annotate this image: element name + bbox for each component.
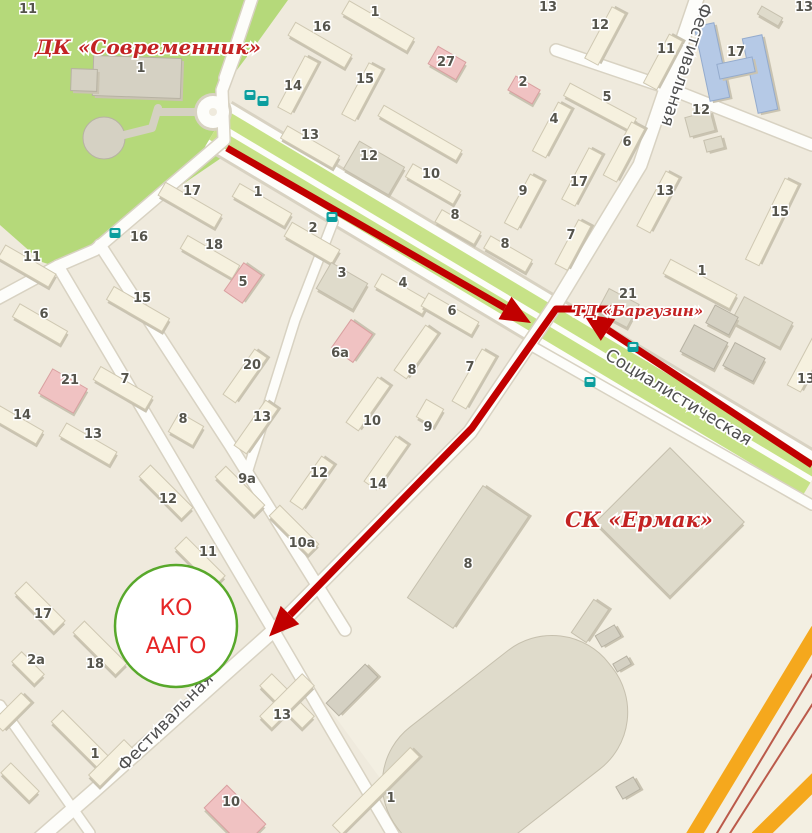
building-number: 18	[205, 238, 223, 253]
building-number: 12	[591, 18, 609, 33]
building-number: 21	[619, 287, 637, 302]
building-number: 11	[19, 2, 37, 17]
building-number: 8	[450, 208, 459, 223]
building	[71, 69, 98, 92]
building-number: 6a	[331, 346, 349, 361]
building-number: 5	[602, 90, 611, 105]
building-number: 17	[727, 45, 745, 60]
building-number: 7	[566, 228, 575, 243]
building-number: 12	[310, 466, 328, 481]
building-number: 11	[23, 250, 41, 265]
building-number: 8	[500, 237, 509, 252]
street-loop-island	[209, 108, 217, 116]
building-number: 2a	[27, 653, 45, 668]
building-number: 15	[771, 205, 789, 220]
building-number: 8	[463, 557, 472, 572]
building-number: 4	[549, 112, 558, 127]
building-number: 20	[243, 358, 261, 373]
building-number: 15	[133, 291, 151, 306]
building-number: 12	[692, 103, 710, 118]
building-number: 10	[222, 795, 240, 810]
building-number: 13	[539, 0, 557, 15]
building-number: 13	[273, 708, 291, 723]
bus-stop-icon-window	[630, 344, 637, 347]
building-number: 5	[238, 275, 247, 290]
map-image: 1111711313116141527213121049882121117561…	[0, 0, 812, 833]
bus-stop-icon-window	[587, 379, 594, 382]
bus-stop-icon-window	[112, 230, 119, 233]
building-number: 10	[363, 414, 381, 429]
building-number: 17	[34, 607, 52, 622]
building-number: 11	[657, 42, 675, 57]
building-number: 6	[622, 135, 631, 150]
building-number: 18	[86, 657, 104, 672]
building-number: 1	[136, 61, 145, 76]
building-number: 2	[518, 75, 527, 90]
bus-stop-icon-window	[329, 214, 336, 217]
building-number: 2	[308, 221, 317, 236]
building-number: 1	[386, 791, 395, 806]
building-number: 13	[795, 0, 812, 15]
building-number: 12	[159, 492, 177, 507]
building-number: 8	[407, 363, 416, 378]
building-number: 9	[518, 184, 527, 199]
ko-aago-marker-text: КО	[160, 596, 193, 621]
building-number: 12	[360, 149, 378, 164]
building-number: 9	[423, 420, 432, 435]
map-canvas[interactable]: 1111711313116141527213121049882121117561…	[0, 0, 812, 833]
building-number: 13	[797, 372, 812, 387]
building-number: 14	[284, 79, 302, 94]
td-barguzin-label: ТД «Баргузин»	[573, 302, 703, 320]
building-number: 21	[61, 373, 79, 388]
building-number: 16	[130, 230, 148, 245]
building-number: 10a	[289, 536, 316, 551]
building-number: 13	[253, 410, 271, 425]
building-number: 15	[356, 72, 374, 87]
building-number: 13	[656, 184, 674, 199]
building-number: 3	[337, 266, 346, 281]
building-number: 11	[199, 545, 217, 560]
building-number: 10	[422, 167, 440, 182]
ko-aago-marker-text: ААГО	[146, 634, 207, 659]
dk-sovremennik-label: ДК «Современник»	[34, 35, 261, 59]
bus-stop-icon-window	[247, 92, 254, 95]
building-number: 16	[313, 20, 331, 35]
building-number: 7	[120, 372, 129, 387]
building-number: 1	[253, 185, 262, 200]
building-number: 17	[183, 184, 201, 199]
sk-ermak-label: СК «Ермак»	[565, 507, 713, 532]
bus-stop-icon-window	[260, 98, 267, 101]
building-number: 14	[13, 408, 31, 423]
building-number: 13	[84, 427, 102, 442]
ko-aago-marker	[115, 565, 237, 687]
building-number: 1	[370, 5, 379, 20]
building-number: 14	[369, 477, 387, 492]
building-number: 4	[398, 276, 407, 291]
building-number: 9a	[238, 472, 256, 487]
building-number: 17	[570, 175, 588, 190]
building-number: 27	[437, 55, 455, 70]
building-number: 6	[447, 304, 456, 319]
building-number: 13	[301, 128, 319, 143]
building-number: 1	[697, 264, 706, 279]
building-number: 7	[465, 360, 474, 375]
building-number: 1	[90, 747, 99, 762]
building-number: 6	[39, 307, 48, 322]
building-number: 8	[178, 412, 187, 427]
